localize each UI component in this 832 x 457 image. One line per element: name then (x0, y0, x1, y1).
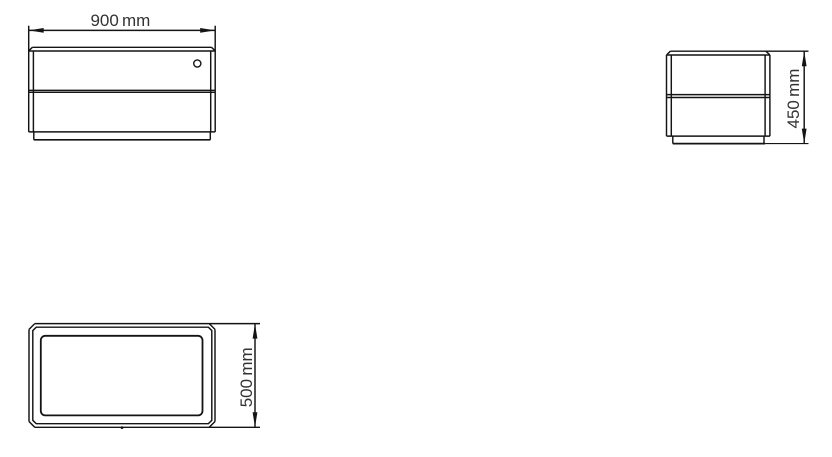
svg-text:900 mm: 900 mm (90, 11, 150, 30)
svg-text:500 mm: 500 mm (237, 347, 256, 407)
svg-text:450 mm: 450 mm (784, 69, 803, 129)
